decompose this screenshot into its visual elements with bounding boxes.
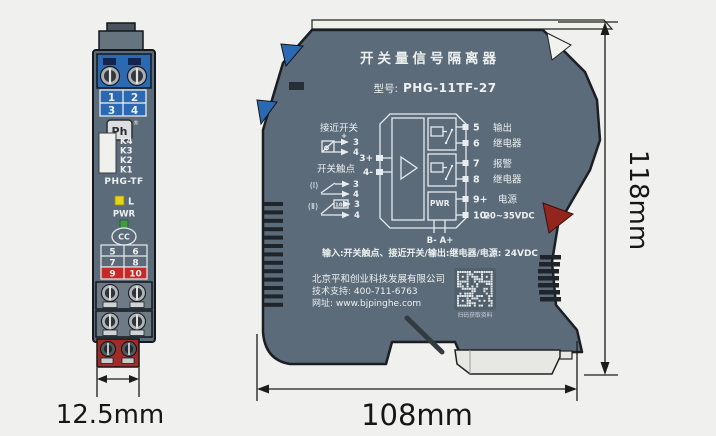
wire-terminal: 3 bbox=[353, 138, 359, 148]
arrowhead-icon bbox=[129, 375, 139, 383]
output-relay-label: 输出 bbox=[493, 122, 512, 134]
terminal-number: 9 bbox=[109, 270, 115, 280]
terminal-number: 10 bbox=[129, 270, 142, 280]
height-dimension-label: 118mm bbox=[623, 150, 653, 250]
qr-caption: 扫码获取资料 bbox=[458, 311, 493, 319]
registered-mark: ® bbox=[133, 120, 139, 127]
product-title: 开关量信号隔离器 bbox=[360, 50, 500, 67]
arrowhead-icon bbox=[601, 362, 610, 375]
switch-contact-label: 开关触点 bbox=[317, 163, 356, 175]
model-number: PHG-11TF-27 bbox=[403, 81, 497, 95]
side-model-label: PHG-TF bbox=[104, 177, 143, 187]
contact-numeral: (Ⅱ) bbox=[308, 202, 318, 211]
website-line: 网址: www.bjpinghe.com bbox=[312, 297, 421, 309]
terminal-block-gray bbox=[96, 282, 152, 309]
plus-sign: + bbox=[341, 132, 347, 140]
din-foot bbox=[99, 31, 143, 52]
terminal-pad bbox=[376, 169, 383, 175]
support-line: 技术支持: 400-711-6763 bbox=[312, 285, 418, 297]
terminal-number: 2 bbox=[131, 92, 138, 104]
proximity-switch-label: 接近开关 bbox=[320, 122, 359, 134]
terminal-pad bbox=[463, 212, 469, 218]
terminal-label: 6 bbox=[473, 139, 480, 150]
terminal-number: 5 bbox=[109, 248, 115, 258]
pwr-box-label: PWR bbox=[430, 199, 450, 208]
alarm-relay-label: 报警 bbox=[493, 158, 513, 170]
terminal-label: 9+ bbox=[473, 195, 488, 206]
terminal-pad bbox=[463, 176, 469, 182]
terminal-block-blue bbox=[97, 54, 151, 88]
terminal-label: 8 bbox=[473, 175, 480, 186]
input-terminal-label: 3+ bbox=[359, 154, 373, 164]
arrowhead-icon bbox=[565, 385, 577, 394]
wire-terminal: 4 bbox=[353, 148, 359, 158]
arrowhead-icon bbox=[97, 375, 107, 383]
screw-icon bbox=[101, 67, 120, 86]
product-illustration: 1 2 3 4 Ph ® K4 K3 K2 K1 PHG-TF L PWR CC bbox=[0, 0, 716, 436]
resistor-value: 10K bbox=[335, 203, 348, 209]
terminal-block-gray bbox=[96, 311, 152, 337]
front-width-dimension-label: 108mm bbox=[361, 398, 473, 432]
side-module: 1 2 3 4 Ph ® K4 K3 K2 K1 PHG-TF L PWR CC bbox=[93, 23, 155, 367]
alarm-relay-label: 继电器 bbox=[493, 174, 522, 186]
side-slot bbox=[289, 82, 304, 90]
power-range-label: 20~35VDC bbox=[484, 212, 535, 222]
k-label: K4 bbox=[120, 137, 133, 147]
led-label: L bbox=[128, 197, 134, 208]
side-width-dimension-label: 12.5mm bbox=[56, 400, 165, 430]
terminal-number: 3 bbox=[108, 105, 115, 117]
output-relay-label: 继电器 bbox=[493, 138, 522, 150]
k-label: K3 bbox=[120, 147, 133, 157]
contact-numeral: (Ⅰ) bbox=[310, 181, 319, 190]
power-label: 电源 bbox=[498, 194, 518, 206]
terminal-pad bbox=[376, 155, 383, 161]
illustration-svg: 1 2 3 4 Ph ® K4 K3 K2 K1 PHG-TF L PWR CC bbox=[0, 0, 716, 436]
led-green bbox=[120, 220, 128, 228]
input-terminal-label: 4- bbox=[363, 168, 373, 178]
terminal-pad bbox=[463, 140, 469, 146]
screw-icon bbox=[128, 67, 147, 86]
terminal-pad bbox=[463, 196, 469, 202]
din-clip bbox=[455, 350, 572, 374]
front-module: 开关量信号隔离器 型号: PHG-11TF-27 3+ 4- bbox=[257, 20, 612, 374]
spec-line: 输入:开关触点、接近开关/输出:继电器/电源: 24VDC bbox=[322, 247, 538, 259]
bus-label: B- A+ bbox=[427, 236, 454, 246]
terminal-number-table-alarm: 9 10 bbox=[101, 267, 147, 280]
terminal-label: 7 bbox=[473, 159, 480, 170]
dimension-side-width: 12.5mm bbox=[56, 368, 165, 430]
wire-terminal: 4 bbox=[354, 211, 360, 221]
terminal-label: 5 bbox=[473, 123, 480, 134]
wire-terminal: 3 bbox=[354, 200, 360, 210]
k-label: K1 bbox=[120, 166, 133, 176]
pwr-label: PWR bbox=[113, 210, 136, 220]
k-label: K2 bbox=[120, 156, 133, 166]
company-name: 北京平和创业科技发展有限公司 bbox=[312, 273, 445, 285]
led-yellow bbox=[115, 196, 124, 205]
arrowhead-icon bbox=[257, 385, 269, 394]
terminal-block-red bbox=[97, 339, 139, 367]
cert-mark-text: CC bbox=[118, 233, 130, 242]
terminal-pad bbox=[463, 124, 469, 130]
label-window bbox=[99, 133, 116, 173]
terminal-number: 4 bbox=[131, 105, 138, 117]
terminal-number: 6 bbox=[132, 248, 138, 258]
terminal-pad bbox=[463, 160, 469, 166]
terminal-number: 1 bbox=[108, 92, 115, 104]
wire-terminal: 4 bbox=[353, 190, 359, 200]
model-prefix: 型号: bbox=[373, 82, 398, 95]
k-labels: K4 K3 K2 K1 bbox=[120, 137, 133, 176]
terminal-number-table-top: 1 2 3 4 bbox=[100, 90, 146, 117]
wire-terminal: 3 bbox=[353, 180, 359, 190]
